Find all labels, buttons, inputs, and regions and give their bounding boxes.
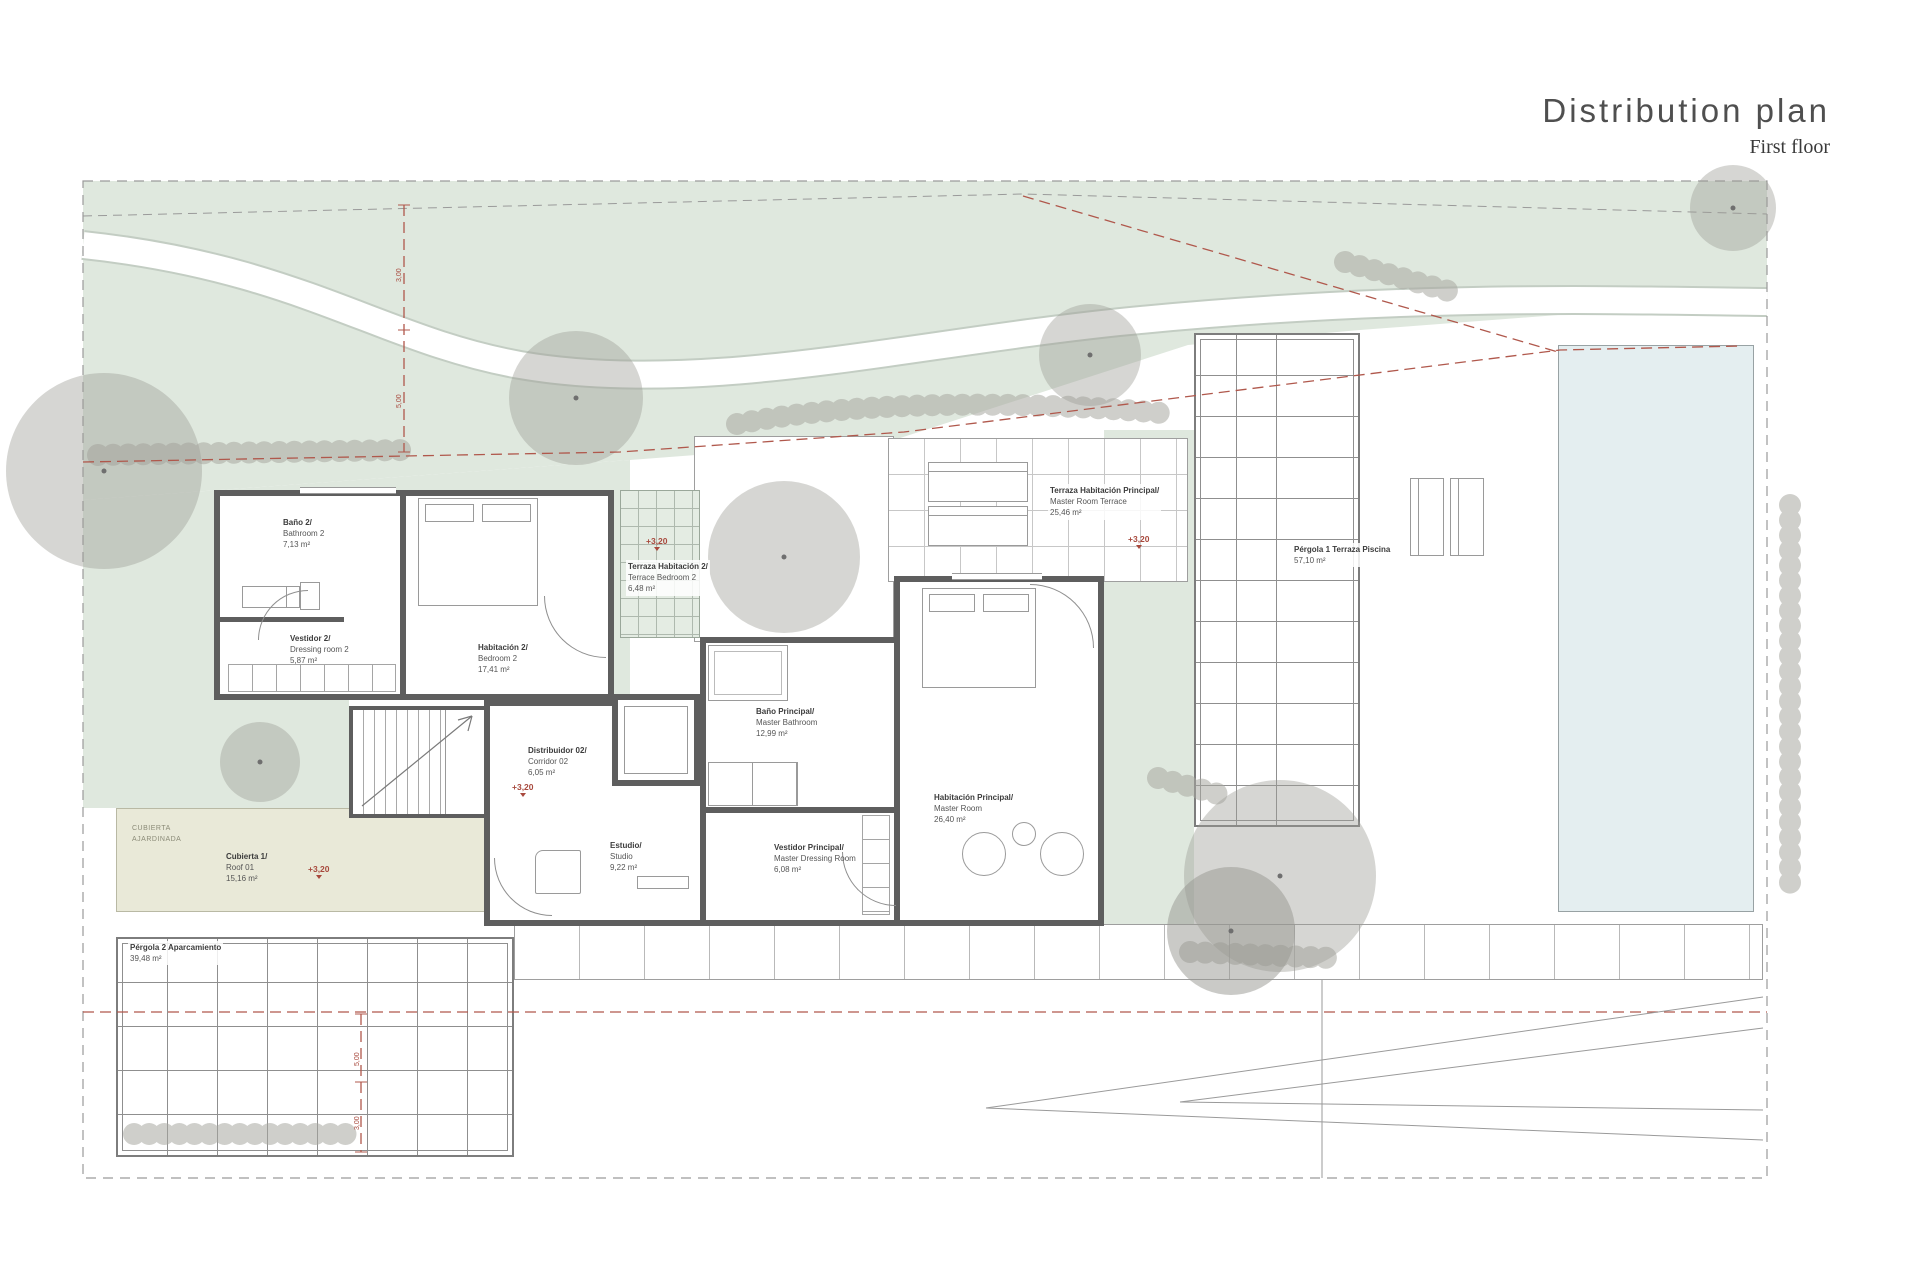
level-marker: +3,20 [512, 782, 534, 797]
room-area: 57,10 m² [1294, 555, 1390, 566]
room-name-es: Terraza Habitación Principal/ [1050, 485, 1159, 496]
green-roof-note-line1: CUBIERTA [132, 824, 181, 835]
window [300, 487, 396, 494]
room-name-en: Master Bathroom [756, 717, 817, 728]
room-name-en: Bedroom 2 [478, 653, 528, 664]
room-label-master-room: Habitación Principal/ Master Room 26,40 … [934, 792, 1013, 826]
master-shower [708, 645, 788, 701]
pergola-2-carport [116, 937, 514, 1157]
room-area: 5,87 m² [290, 655, 349, 666]
room-area: 6,48 m² [628, 583, 708, 594]
armchair [962, 832, 1006, 876]
room-name-en: Master Room Terrace [1050, 496, 1159, 507]
level-flag-icon [316, 875, 322, 879]
page-subtitle: First floor [1542, 136, 1830, 159]
level-flag-icon [520, 793, 526, 797]
room-name-en: Master Dressing Room [774, 853, 856, 864]
staircase [349, 706, 490, 818]
room-label-master-bathroom: Baño Principal/ Master Bathroom 12,99 m² [756, 706, 817, 740]
level-marker: +3,20 [1128, 534, 1150, 549]
room-name-es: Habitación Principal/ [934, 792, 1013, 803]
window [952, 573, 1042, 580]
room-area: 7,13 m² [283, 539, 324, 550]
room-name-es: Cubierta 1/ [226, 851, 267, 862]
pool-lounger [1410, 478, 1444, 556]
room-name-en: Bathroom 2 [283, 528, 324, 539]
level-value: +3,20 [308, 864, 330, 874]
room-name-es: Pérgola 1 Terraza Piscina [1294, 544, 1390, 555]
room-name-en: Studio [610, 851, 642, 862]
room-area: 9,22 m² [610, 862, 642, 873]
room-name-es: Terraza Habitación 2/ [628, 561, 708, 572]
green-roof-note-line2: AJARDINADA [132, 835, 181, 846]
room-label-roof-01: Cubierta 1/ Roof 01 15,16 m² [226, 851, 267, 885]
patio-court [694, 436, 894, 642]
studio-desk [637, 876, 689, 889]
garden-path [83, 245, 1767, 375]
swimming-pool [1558, 345, 1754, 912]
skylight-shaft [612, 694, 700, 786]
level-value: +3,20 [512, 782, 534, 792]
room-name-es: Habitación 2/ [478, 642, 528, 653]
room-label-terrace-master: Terraza Habitación Principal/ Master Roo… [1048, 484, 1161, 520]
room-name-es: Pérgola 2 Aparcamiento [130, 942, 221, 953]
wardrobe-dressing2 [228, 664, 396, 692]
sun-lounger [928, 506, 1028, 546]
dimension-label: 5,00 [396, 394, 403, 408]
room-label-bathroom-2: Baño 2/ Bathroom 2 7,13 m² [283, 517, 324, 551]
green-roof-note: CUBIERTA AJARDINADA [132, 824, 181, 845]
title-block: Distribution plan First floor [1542, 92, 1830, 159]
room-label-dressing-2: Vestidor 2/ Dressing room 2 5,87 m² [290, 633, 349, 667]
room-label-bedroom-2: Habitación 2/ Bedroom 2 17,41 m² [478, 642, 528, 676]
room-name-en: Terrace Bedroom 2 [628, 572, 708, 583]
pool-lounger [1450, 478, 1484, 556]
pergola-beam [1276, 335, 1277, 825]
room-area: 26,40 m² [934, 814, 1013, 825]
room-area: 6,08 m² [774, 864, 856, 875]
room-name-es: Vestidor 2/ [290, 633, 349, 644]
room-area: 39,48 m² [130, 953, 221, 964]
room-label-pergola-1: Pérgola 1 Terraza Piscina 57,10 m² [1292, 543, 1392, 567]
room-name-en: Dressing room 2 [290, 644, 349, 655]
room-area: 15,16 m² [226, 873, 267, 884]
level-flag-icon [654, 547, 660, 551]
room-label-master-dressing: Vestidor Principal/ Master Dressing Room… [774, 842, 856, 876]
driveway-ramp-lines [986, 980, 1763, 1178]
bed-double [418, 498, 538, 606]
floor-plan-canvas: Distribution plan First floor [0, 0, 1920, 1280]
armchair [1040, 832, 1084, 876]
dimension-label: 3,00 [396, 268, 403, 282]
page-title: Distribution plan [1542, 92, 1830, 130]
room-name-es: Estudio/ [610, 840, 642, 851]
walkway [514, 924, 1763, 980]
pergola-1-pool-terrace [1194, 333, 1360, 827]
dimension-label: 5,00 [354, 1052, 361, 1066]
room-label-pergola-2: Pérgola 2 Aparcamiento 39,48 m² [128, 941, 223, 965]
pergola-beam [1236, 335, 1237, 825]
room-name-es: Distribuidor 02/ [528, 745, 587, 756]
room-label-corridor-02: Distribuidor 02/ Corridor 02 6,05 m² [528, 745, 587, 779]
level-marker: +3,20 [646, 536, 668, 551]
master-sink-counter [708, 762, 798, 806]
room-name-es: Baño 2/ [283, 517, 324, 528]
room-label-terrace-bedroom-2: Terraza Habitación 2/ Terrace Bedroom 2 … [626, 560, 710, 596]
room-name-es: Baño Principal/ [756, 706, 817, 717]
room-name-en: Roof 01 [226, 862, 267, 873]
dimension-label: 3,00 [354, 1116, 361, 1130]
sun-lounger [928, 462, 1028, 502]
plot-boundary-inner [83, 194, 1767, 216]
room-label-studio: Estudio/ Studio 9,22 m² [610, 840, 642, 874]
room-name-en: Corridor 02 [528, 756, 587, 767]
side-table [1012, 822, 1036, 846]
room-area: 25,46 m² [1050, 507, 1159, 518]
room-name-es: Vestidor Principal/ [774, 842, 856, 853]
level-marker: +3,20 [308, 864, 330, 879]
level-value: +3,20 [1128, 534, 1150, 544]
room-area: 12,99 m² [756, 728, 817, 739]
room-name-en: Master Room [934, 803, 1013, 814]
room-area: 6,05 m² [528, 767, 587, 778]
level-flag-icon [1136, 545, 1142, 549]
stair-landing [445, 710, 486, 814]
bed-master [922, 588, 1036, 688]
room-area: 17,41 m² [478, 664, 528, 675]
level-value: +3,20 [646, 536, 668, 546]
